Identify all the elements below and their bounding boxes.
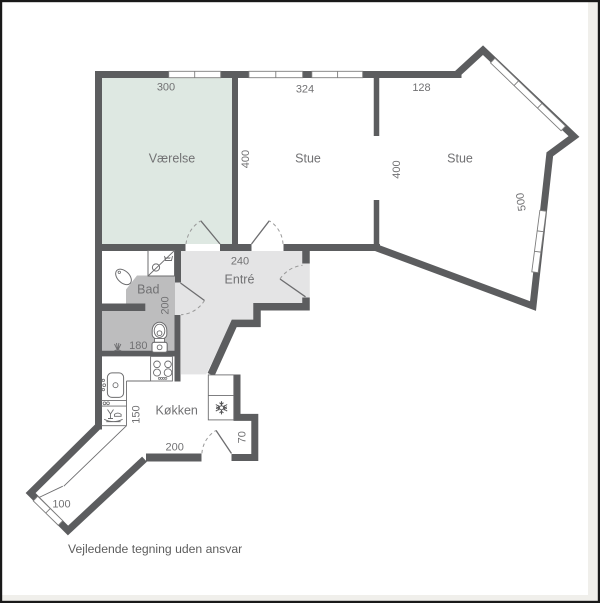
svg-text:180: 180 (129, 340, 147, 352)
svg-text:Vejledende tegning uden ansvar: Vejledende tegning uden ansvar (68, 542, 242, 556)
svg-text:70: 70 (236, 431, 248, 443)
svg-text:200: 200 (166, 441, 184, 453)
svg-text:128: 128 (412, 82, 430, 94)
svg-text:Værelse: Værelse (149, 152, 196, 166)
svg-text:Stue: Stue (295, 152, 321, 166)
svg-text:400: 400 (391, 160, 403, 178)
svg-text:200: 200 (160, 296, 172, 314)
svg-text:500: 500 (514, 192, 528, 212)
svg-text:300: 300 (157, 82, 175, 94)
svg-text:240: 240 (231, 255, 249, 267)
svg-text:150: 150 (131, 405, 143, 423)
svg-text:100: 100 (52, 499, 70, 511)
svg-text:Entré: Entré (225, 273, 255, 287)
svg-text:Stue: Stue (447, 152, 473, 166)
svg-text:324: 324 (296, 84, 314, 96)
svg-text:400: 400 (240, 150, 252, 168)
svg-text:Bad: Bad (137, 282, 159, 296)
svg-text:Køkken: Køkken (156, 404, 198, 418)
